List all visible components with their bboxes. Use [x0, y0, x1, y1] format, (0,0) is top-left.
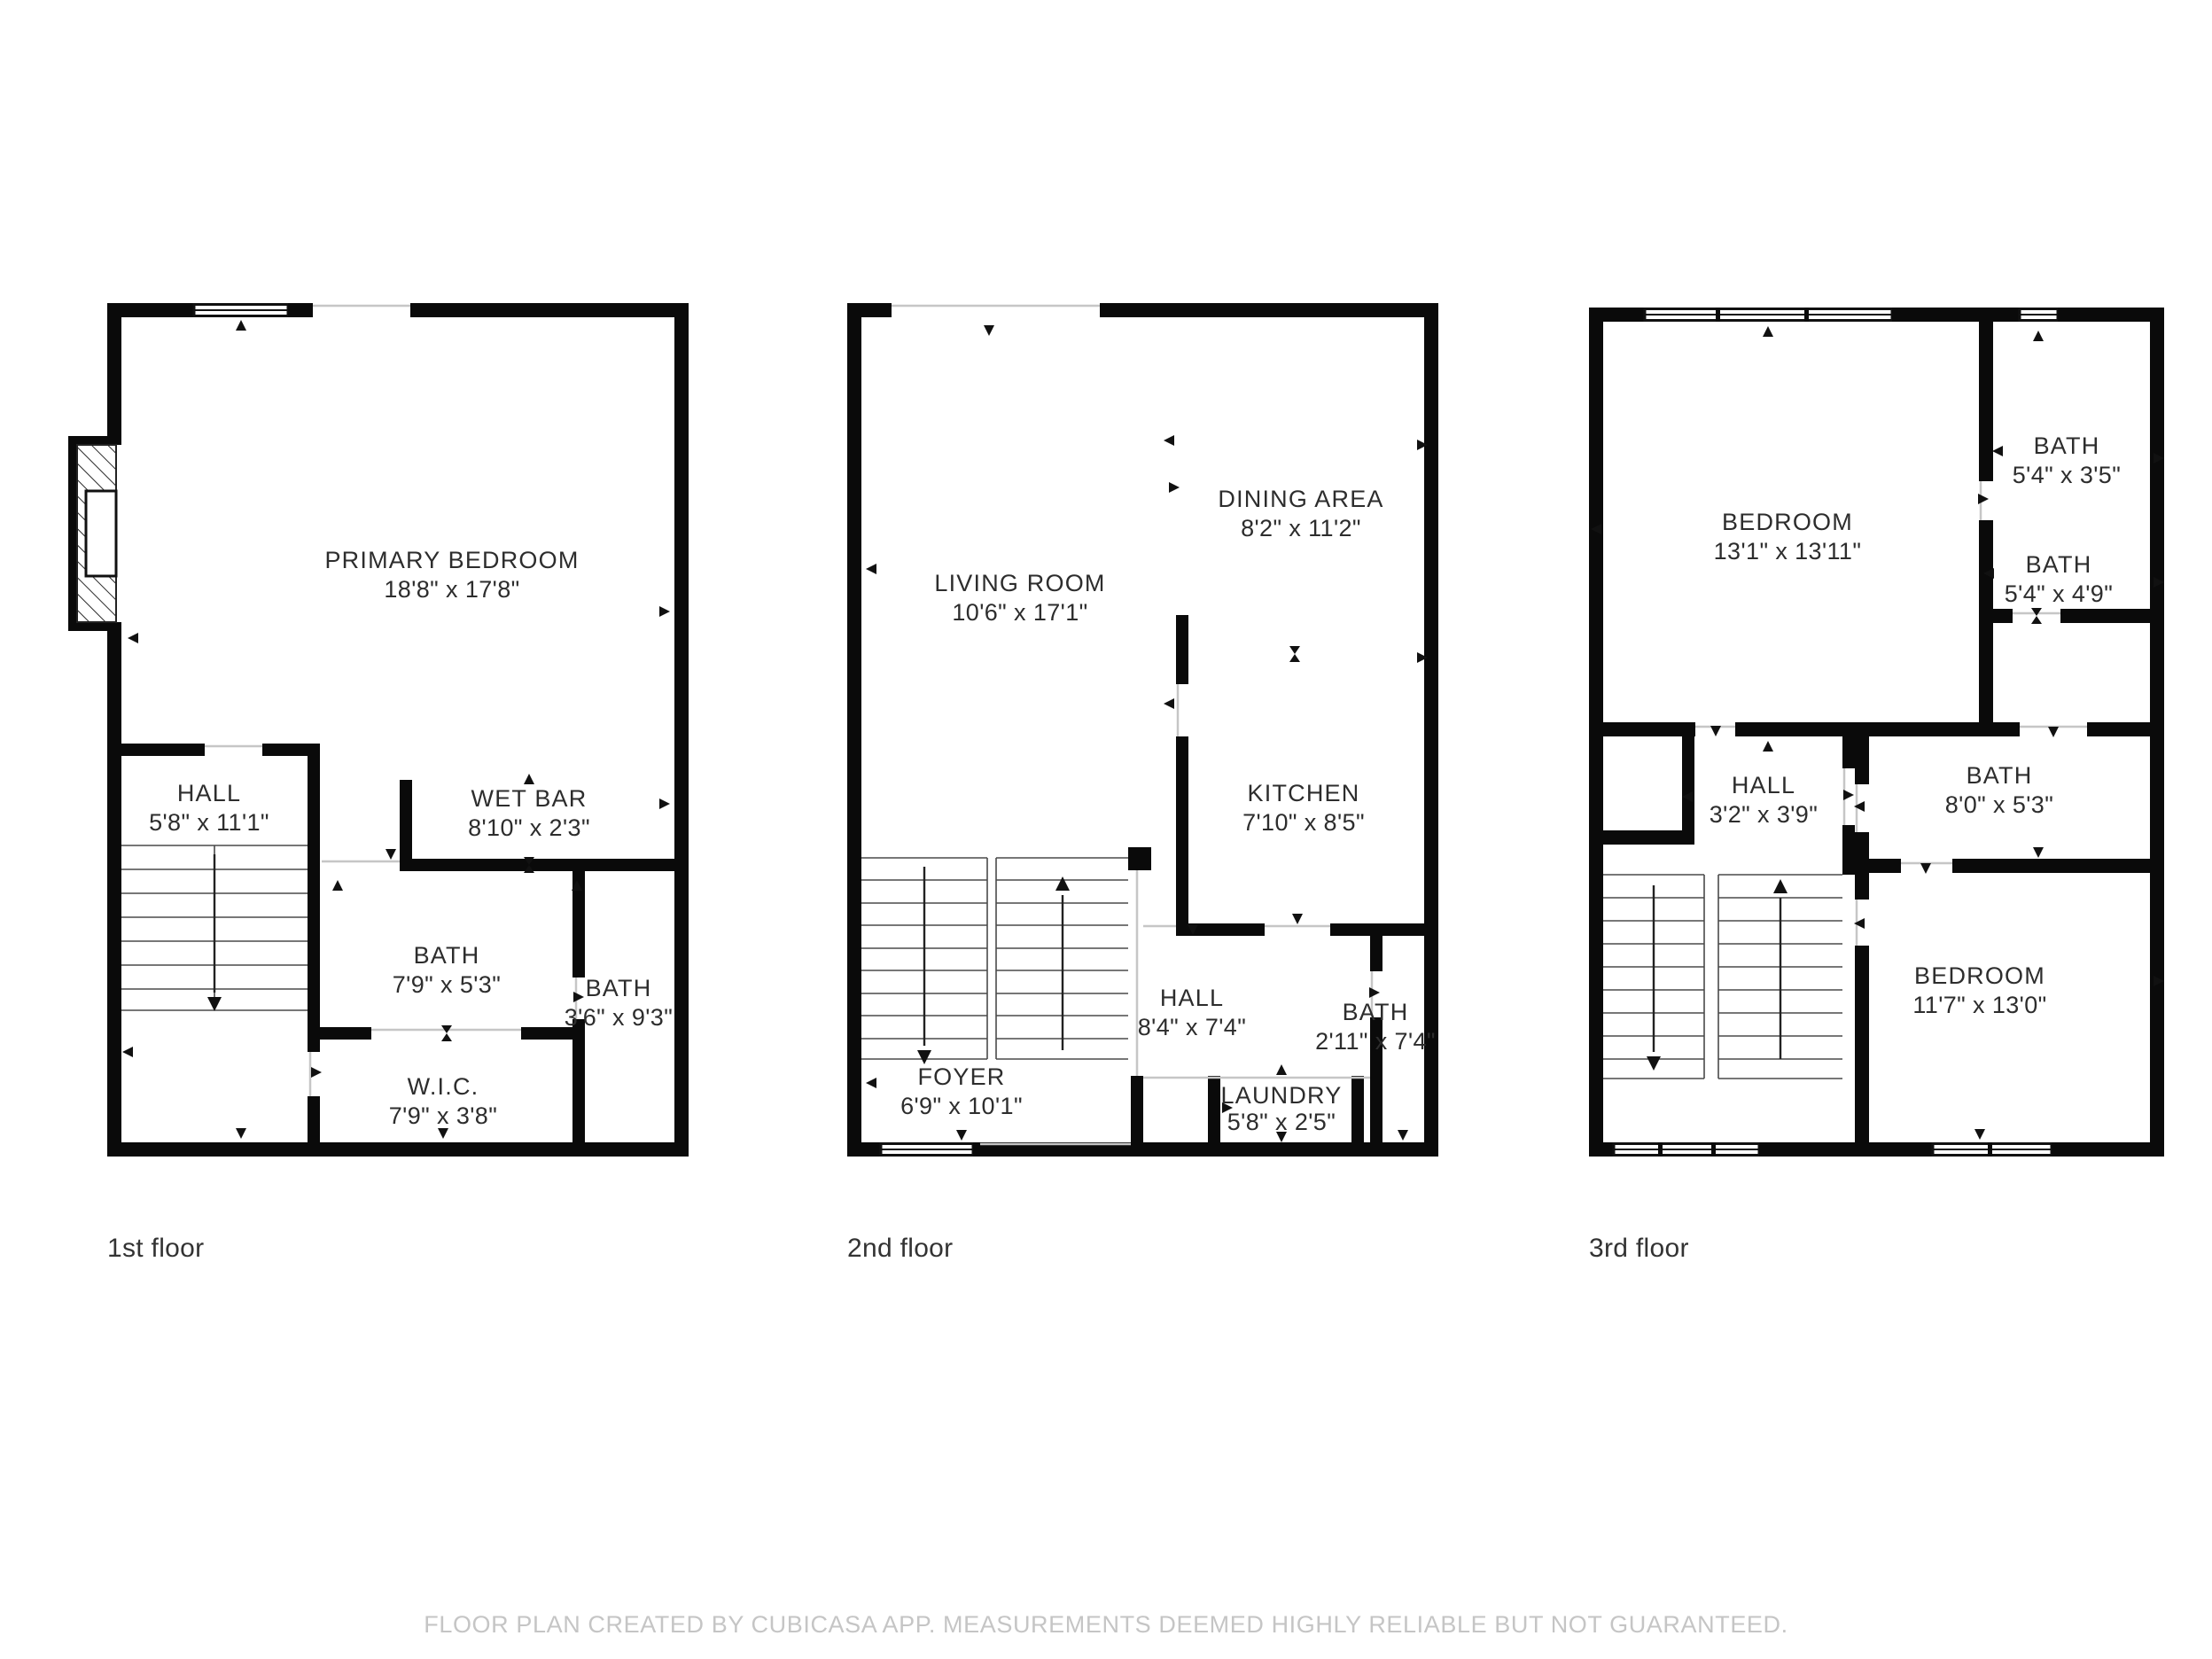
interior-walls — [1128, 615, 1438, 1142]
window — [1638, 308, 1899, 322]
stair-direction-arrow — [1055, 876, 1070, 891]
window — [874, 1142, 980, 1157]
floor-plan-2nd-floor: LIVING ROOM 10'6" x 17'1" DINING AREA 8'… — [847, 303, 1438, 1157]
room-label: WET BAR — [471, 785, 588, 812]
stair-direction-arrow — [1773, 879, 1788, 893]
room-label: BATH — [2034, 432, 2100, 459]
fireplace — [68, 436, 121, 631]
room-dims: 10'6" x 17'1" — [952, 599, 1087, 626]
room-label: LIVING ROOM — [934, 570, 1105, 596]
staircase-down — [121, 845, 308, 1011]
room-dims: 7'9" x 3'8" — [389, 1102, 497, 1129]
room-label: BEDROOM — [1722, 509, 1853, 535]
room-label: BATH — [414, 942, 480, 969]
disclaimer-text: FLOOR PLAN CREATED BY CUBICASA APP. MEAS… — [0, 1611, 2212, 1639]
room-label: BATH — [1967, 762, 2033, 789]
firebox — [86, 491, 116, 576]
room-dims: 13'1" x 13'11" — [1714, 538, 1862, 565]
room-dims: 8'2" x 11'2" — [1241, 515, 1361, 541]
room-dims: 7'9" x 5'3" — [393, 971, 501, 998]
room-label: HALL — [1160, 985, 1224, 1011]
staircase-double — [861, 858, 1128, 1064]
room-label: FOYER — [917, 1063, 1005, 1090]
floor-label-1st: 1st floor — [107, 1234, 204, 1264]
floor-plan-3rd-floor: BEDROOM 13'1" x 13'11" BATH 5'4" x 3'5" … — [1589, 308, 2164, 1157]
room-dims: 11'7" x 13'0" — [1912, 992, 2046, 1018]
room-labels: LIVING ROOM 10'6" x 17'1" DINING AREA 8'… — [900, 486, 1436, 1135]
room-label: HALL — [1732, 772, 1795, 798]
window — [2014, 308, 2063, 322]
floor-plan-page: { "footer": { "text": "FLOOR PLAN CREATE… — [0, 0, 2212, 1659]
room-dims: 3'6" x 9'3" — [565, 1004, 673, 1031]
window — [1926, 1142, 2059, 1157]
room-label: BATH — [586, 975, 652, 1001]
window — [1607, 1142, 1766, 1157]
room-label: W.I.C. — [408, 1073, 479, 1100]
room-label: PRIMARY BEDROOM — [324, 547, 579, 573]
floor-plan-1st-floor: PRIMARY BEDROOM 18'8" x 17'8" HALL 5'8" … — [63, 303, 689, 1157]
room-label: KITCHEN — [1248, 780, 1360, 806]
floor-label-3rd: 3rd floor — [1589, 1234, 1689, 1264]
room-label: BATH — [2026, 551, 2092, 578]
stair-direction-arrow — [917, 1050, 931, 1064]
floor-label-2nd: 2nd floor — [847, 1234, 953, 1264]
stair-direction-arrow — [207, 997, 222, 1011]
room-label: DINING AREA — [1218, 486, 1383, 512]
room-dims: 6'9" x 10'1" — [900, 1093, 1023, 1119]
room-dims: 8'0" x 5'3" — [1945, 791, 2053, 818]
room-dims: 3'2" x 3'9" — [1710, 801, 1818, 828]
room-label: BATH — [1343, 999, 1409, 1025]
room-dims: 2'11" x 7'4" — [1315, 1028, 1436, 1055]
window — [187, 303, 295, 317]
room-label: HALL — [177, 780, 241, 806]
stair-direction-arrow — [1647, 1056, 1661, 1071]
room-label: BEDROOM — [1914, 962, 2045, 989]
room-dims: 5'4" x 4'9" — [2005, 580, 2113, 607]
room-dims: 5'8" x 2'5" — [1227, 1109, 1336, 1135]
room-dims: 5'4" x 3'5" — [2013, 462, 2121, 488]
room-dims: 7'10" x 8'5" — [1242, 809, 1365, 836]
room-label: LAUNDRY — [1221, 1082, 1343, 1109]
staircase-double — [1603, 875, 1842, 1079]
room-dims: 8'10" x 2'3" — [468, 814, 590, 841]
room-dims: 5'8" x 11'1" — [149, 809, 269, 836]
room-dims: 8'4" x 7'4" — [1138, 1014, 1246, 1040]
room-dims: 18'8" x 17'8" — [384, 576, 519, 603]
